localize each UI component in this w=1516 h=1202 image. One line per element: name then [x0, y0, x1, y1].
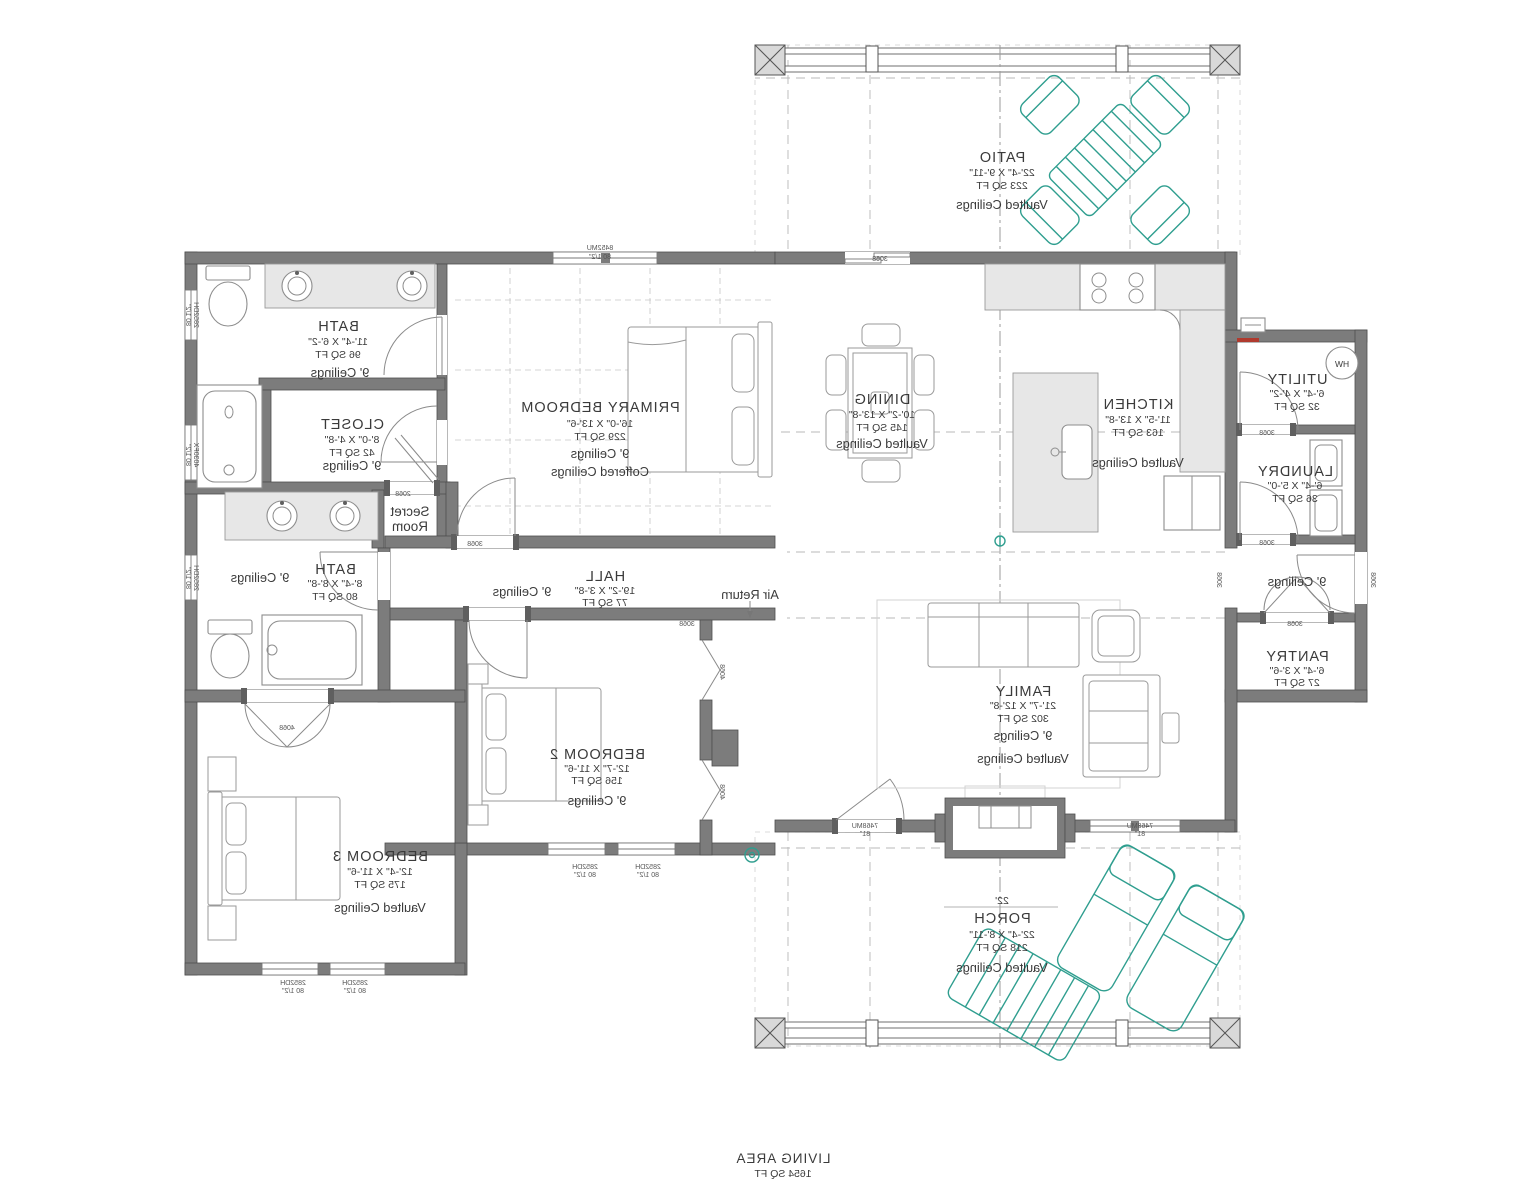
svg-text:2852DH: 2852DH: [342, 980, 368, 987]
svg-text:9' Ceilings: 9' Ceilings: [571, 446, 630, 461]
living-area-label: LIVING AREA: [735, 1151, 830, 1166]
svg-text:6'-4" X 5'-0": 6'-4" X 5'-0": [1267, 480, 1322, 492]
svg-text:175 SQ FT: 175 SQ FT: [354, 879, 406, 891]
mirrored-plan: BATH 11'-4" X 6'-2" 96 SQ FT 9' Ceilings…: [184, 21, 1376, 1180]
svg-text:Vaulted Ceilings: Vaulted Ceilings: [836, 436, 928, 451]
svg-text:2852DH: 2852DH: [635, 864, 661, 871]
svg-text:6'-4" X 4'-2": 6'-4" X 4'-2": [1269, 388, 1324, 400]
floor-plan-svg: BATH 11'-4" X 6'-2" 96 SQ FT 9' Ceilings…: [0, 0, 1516, 1202]
svg-text:156 SQ FT: 156 SQ FT: [571, 775, 623, 787]
svg-text:80 1/2": 80 1/2": [184, 567, 191, 589]
thermostat-symbol: [995, 536, 1005, 546]
air-return-label: Air Return: [721, 587, 779, 602]
svg-text:163 SQ FT: 163 SQ FT: [1112, 427, 1164, 439]
svg-text:9' Ceilings: 9' Ceilings: [323, 458, 382, 473]
svg-text:3068: 3068: [1369, 572, 1376, 588]
room-label-pantry: PANTRY: [1265, 649, 1328, 665]
svg-text:2852DH: 2852DH: [192, 302, 199, 328]
living-area-value: 1654 SQ FT: [754, 1168, 812, 1180]
closet2-shelf: [712, 730, 738, 766]
svg-text:16'-0" X 13'-6": 16'-0" X 13'-6": [567, 418, 634, 430]
svg-text:19'-2" X 3'-8": 19'-2" X 3'-8": [574, 585, 635, 597]
svg-text:80 1/2": 80 1/2": [344, 988, 366, 995]
svg-text:80 1/2": 80 1/2": [184, 444, 191, 466]
svg-text:22'-4" X 8'-11": 22'-4" X 8'-11": [969, 929, 1035, 941]
svg-text:3068: 3068: [872, 256, 888, 263]
svg-text:81": 81": [1134, 831, 1145, 838]
svg-text:9' Ceilings: 9' Ceilings: [994, 728, 1053, 743]
room-label-utility: UTILITY: [1267, 372, 1328, 388]
svg-text:80 1/2": 80 1/2": [184, 304, 191, 326]
svg-text:3068: 3068: [467, 541, 483, 548]
water-heater-label: HW: [1335, 359, 1349, 369]
room-label-bath2: BATH: [314, 562, 356, 578]
svg-text:Vaulted Ceilings: Vaulted Ceilings: [1092, 455, 1184, 470]
svg-text:80 1/2": 80 1/2": [574, 872, 596, 879]
room-label-dining: DINING: [854, 392, 911, 408]
svg-text:3068: 3068: [1259, 430, 1275, 437]
room-label-family: FAMILY: [995, 684, 1052, 700]
svg-text:2852DH: 2852DH: [280, 980, 306, 987]
svg-text:2068: 2068: [395, 491, 411, 498]
svg-text:Coffered Ceilings: Coffered Ceilings: [551, 464, 649, 479]
room-label-hall: HALL: [585, 569, 625, 585]
room-label-porch: PORCH: [973, 911, 1030, 927]
svg-text:8'-0" X 4'-8": 8'-0" X 4'-8": [324, 434, 379, 446]
svg-text:11'-5" X 13'-8": 11'-5" X 13'-8": [1105, 414, 1171, 426]
room-label-closet: CLOSET: [320, 417, 384, 433]
room-label-hall2: 9' Ceilings: [1268, 574, 1327, 589]
svg-text:81": 81": [859, 831, 870, 838]
room-label-secret: Secret: [390, 504, 429, 519]
svg-text:3068: 3068: [1287, 621, 1303, 628]
svg-text:96 SQ FT: 96 SQ FT: [315, 349, 361, 361]
svg-text:9' Ceilings: 9' Ceilings: [231, 570, 290, 585]
svg-text:9' Ceilings: 9' Ceilings: [568, 793, 627, 808]
room-label-primary: PRIMARY BEDROOM: [520, 400, 680, 416]
svg-text:3068: 3068: [1259, 540, 1275, 547]
svg-text:21'-7" X 12'-8": 21'-7" X 12'-8": [990, 700, 1057, 712]
svg-text:11'-4" X 6'-2": 11'-4" X 6'-2": [308, 336, 368, 348]
svg-text:Vaulted Ceilings: Vaulted Ceilings: [977, 751, 1069, 766]
svg-text:9' Ceilings: 9' Ceilings: [493, 584, 552, 599]
svg-text:10'-2" X 13'-8": 10'-2" X 13'-8": [849, 409, 916, 421]
floor-plan-page: BATH 11'-4" X 6'-2" 96 SQ FT 9' Ceilings…: [0, 0, 1516, 1202]
room-label-patio: PATIO: [979, 150, 1025, 166]
svg-text:223 SQ FT: 223 SQ FT: [976, 180, 1028, 192]
svg-text:6'-4" X 3'-6": 6'-4" X 3'-6": [1269, 665, 1324, 677]
svg-text:77 SQ FT: 77 SQ FT: [582, 597, 628, 609]
svg-text:145 SQ FT: 145 SQ FT: [856, 422, 908, 434]
room-label-kitchen: KITCHEN: [1103, 397, 1174, 413]
bedroom3-bed: [208, 757, 340, 940]
svg-text:3068: 3068: [679, 621, 695, 628]
svg-text:3068: 3068: [1215, 572, 1222, 588]
room-label-bedroom2: BEDROOM 2: [549, 747, 645, 763]
room-label-bedroom3: BEDROOM 3: [332, 849, 428, 865]
svg-text:80 1/2": 80 1/2": [282, 988, 304, 995]
svg-text:32 SQ FT: 32 SQ FT: [1274, 401, 1320, 413]
room-label-laundry: LAUNDRY: [1257, 464, 1333, 480]
svg-text:80 1/2": 80 1/2": [637, 872, 659, 879]
svg-text:80 1/2": 80 1/2": [589, 254, 611, 261]
svg-text:27 SQ FT: 27 SQ FT: [1274, 677, 1320, 689]
fireplace: [935, 786, 1075, 858]
svg-text:8'-4" X 8'-8": 8'-4" X 8'-8": [307, 578, 362, 590]
svg-text:302 SQ FT: 302 SQ FT: [997, 713, 1049, 725]
svg-text:4068: 4068: [279, 725, 295, 732]
svg-text:4030FX: 4030FX: [192, 442, 199, 467]
svg-text:4068: 4068: [718, 664, 725, 680]
svg-text:Room: Room: [392, 519, 428, 534]
svg-text:7468MU: 7468MU: [1127, 823, 1153, 830]
svg-text:218 SQ FT: 218 SQ FT: [976, 942, 1028, 954]
room-label-porch-width: 22': [995, 895, 1009, 907]
room-label-bath-primary: BATH: [317, 319, 359, 335]
svg-text:2852DH: 2852DH: [192, 565, 199, 591]
svg-text:Vaulted Ceilings: Vaulted Ceilings: [956, 960, 1048, 975]
svg-text:2852DH: 2852DH: [572, 864, 598, 871]
svg-text:Vaulted Ceilings: Vaulted Ceilings: [956, 197, 1048, 212]
svg-text:229 SQ FT: 229 SQ FT: [574, 431, 626, 443]
svg-text:Vaulted Ceilings: Vaulted Ceilings: [334, 900, 426, 915]
svg-text:12'-7" X 11'-6": 12'-7" X 11'-6": [564, 763, 630, 775]
svg-text:9' Ceilings: 9' Ceilings: [311, 365, 370, 380]
svg-text:7468MU: 7468MU: [852, 823, 878, 830]
svg-text:12'-4" X 11'-6": 12'-4" X 11'-6": [347, 866, 413, 878]
svg-text:4068: 4068: [718, 784, 725, 800]
svg-text:8452MU: 8452MU: [587, 245, 613, 252]
svg-text:80 SQ FT: 80 SQ FT: [312, 591, 358, 603]
svg-text:36 SQ FT: 36 SQ FT: [1272, 493, 1318, 505]
svg-text:22'-4" X 9'-11": 22'-4" X 9'-11": [969, 167, 1035, 179]
